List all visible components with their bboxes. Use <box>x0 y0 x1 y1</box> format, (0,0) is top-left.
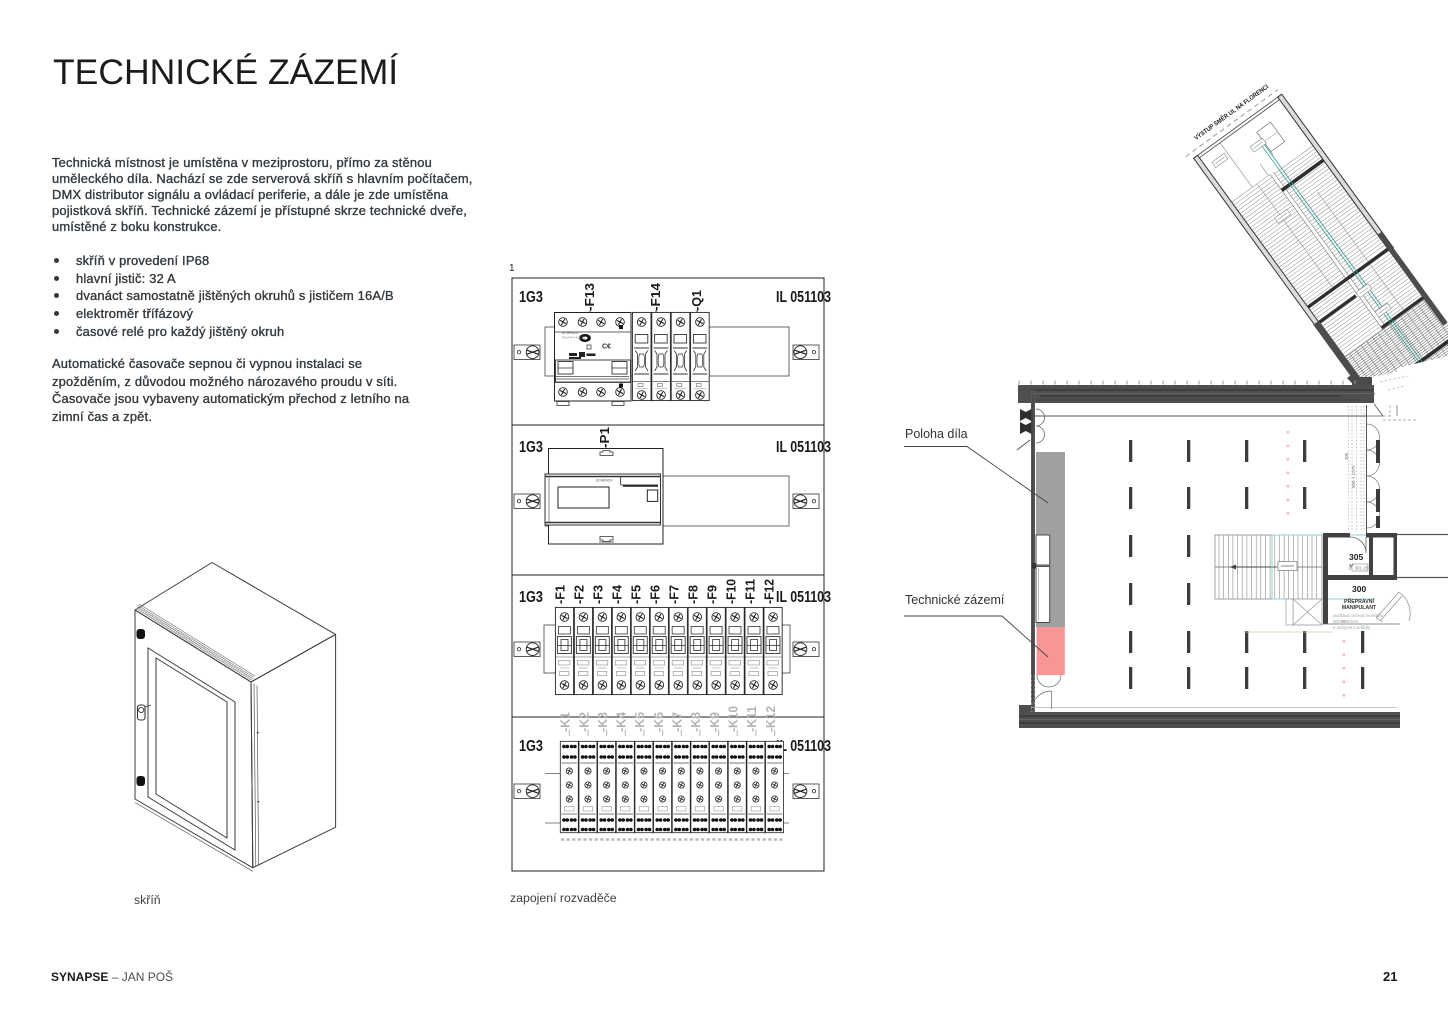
svg-text:-F13: -F13 <box>583 283 597 311</box>
svg-text:-K7: -K7 <box>671 712 685 732</box>
svg-text:-K1: -K1 <box>559 712 573 732</box>
svg-text:-F8: -F8 <box>686 585 700 604</box>
svg-text:-K9: -K9 <box>708 712 722 732</box>
svg-text:-F9: -F9 <box>705 585 719 604</box>
svg-text:Poloha díla: Poloha díla <box>905 427 968 441</box>
svg-text:-F1: -F1 <box>554 585 568 604</box>
svg-text:-K10: -K10 <box>727 706 741 732</box>
svg-text:Technické zázemí: Technické zázemí <box>905 593 1005 607</box>
svg-text:-F11: -F11 <box>743 579 757 604</box>
svg-text:PŘEPRAVNÍ: PŘEPRAVNÍ <box>1344 597 1374 605</box>
svg-text:-F3: -F3 <box>592 585 606 604</box>
svg-text:-K2: -K2 <box>577 712 591 732</box>
svg-text:1G3: 1G3 <box>519 289 543 306</box>
svg-text:900 + 1970: 900 + 1970 <box>1351 465 1356 488</box>
svg-text:-K6: -K6 <box>652 712 666 732</box>
svg-text:BOLF45-4 40/0,03: BOLF45-4 40/0,03 <box>562 336 585 340</box>
svg-text:C€: C€ <box>602 344 611 351</box>
svg-text:-F6: -F6 <box>649 585 663 604</box>
svg-text:-F5: -F5 <box>630 585 644 604</box>
svg-text:-K4: -K4 <box>615 712 629 732</box>
svg-text:IL 051103: IL 051103 <box>776 439 831 456</box>
svg-text:-K5: -K5 <box>633 712 647 732</box>
svg-text:-F12: -F12 <box>762 579 776 604</box>
svg-text:-K8: -K8 <box>689 712 703 732</box>
svg-text:-P1: -P1 <box>598 427 612 448</box>
svg-text:IL 051103: IL 051103 <box>776 738 831 755</box>
svg-text:301.28: 301.28 <box>1355 566 1369 571</box>
svg-text:MANIPULANT: MANIPULANT <box>1342 605 1377 611</box>
svg-text:305: 305 <box>1344 452 1349 460</box>
svg-text:1G3: 1G3 <box>519 439 543 456</box>
svg-text:SCHRACK: SCHRACK <box>596 479 613 483</box>
svg-text:-F14: -F14 <box>649 283 663 311</box>
svg-text:-F10: -F10 <box>724 579 738 604</box>
svg-text:-F4: -F4 <box>611 585 625 604</box>
svg-text:305: 305 <box>1349 552 1363 562</box>
svg-text:podklad rozvod montáže: podklad rozvod montáže <box>1333 613 1383 618</box>
svg-text:-F2: -F2 <box>573 585 587 604</box>
svg-text:SCHRACK: SCHRACK <box>562 331 579 335</box>
svg-text:1G3: 1G3 <box>519 738 543 755</box>
svg-text:600x600mm: 600x600mm <box>1333 619 1358 624</box>
svg-text:IL 051103: IL 051103 <box>776 589 831 606</box>
svg-text:-K11: -K11 <box>745 706 759 732</box>
svg-text:-K3: -K3 <box>596 712 610 732</box>
svg-text:-F7: -F7 <box>668 585 682 604</box>
svg-text:-Q1: -Q1 <box>690 290 704 311</box>
svg-text:1G3: 1G3 <box>519 589 543 606</box>
svg-text:s uchycení svítidly: s uchycení svítidly <box>1333 625 1371 630</box>
svg-text:300: 300 <box>1352 584 1366 594</box>
svg-text:-K12: -K12 <box>764 706 778 732</box>
svg-text:IL 051103: IL 051103 <box>776 289 831 306</box>
